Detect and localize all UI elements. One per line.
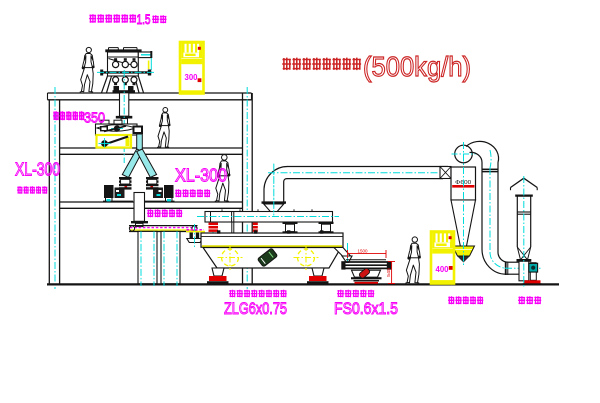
svg-text:1500: 1500 [358,249,368,255]
svg-text:545: 545 [386,267,391,277]
svg-text:XL-300: XL-300 [175,165,227,186]
svg-text:(500kg/h): (500kg/h) [363,51,471,82]
svg-text:FS0.6x1.5: FS0.6x1.5 [334,299,398,318]
svg-text:350: 350 [84,111,105,127]
svg-text:1.5: 1.5 [137,12,151,27]
svg-text:400: 400 [436,265,450,274]
svg-text:300: 300 [185,73,199,82]
svg-text:XL-300: XL-300 [15,159,60,180]
svg-text:ZLG6x0.75: ZLG6x0.75 [224,299,287,318]
